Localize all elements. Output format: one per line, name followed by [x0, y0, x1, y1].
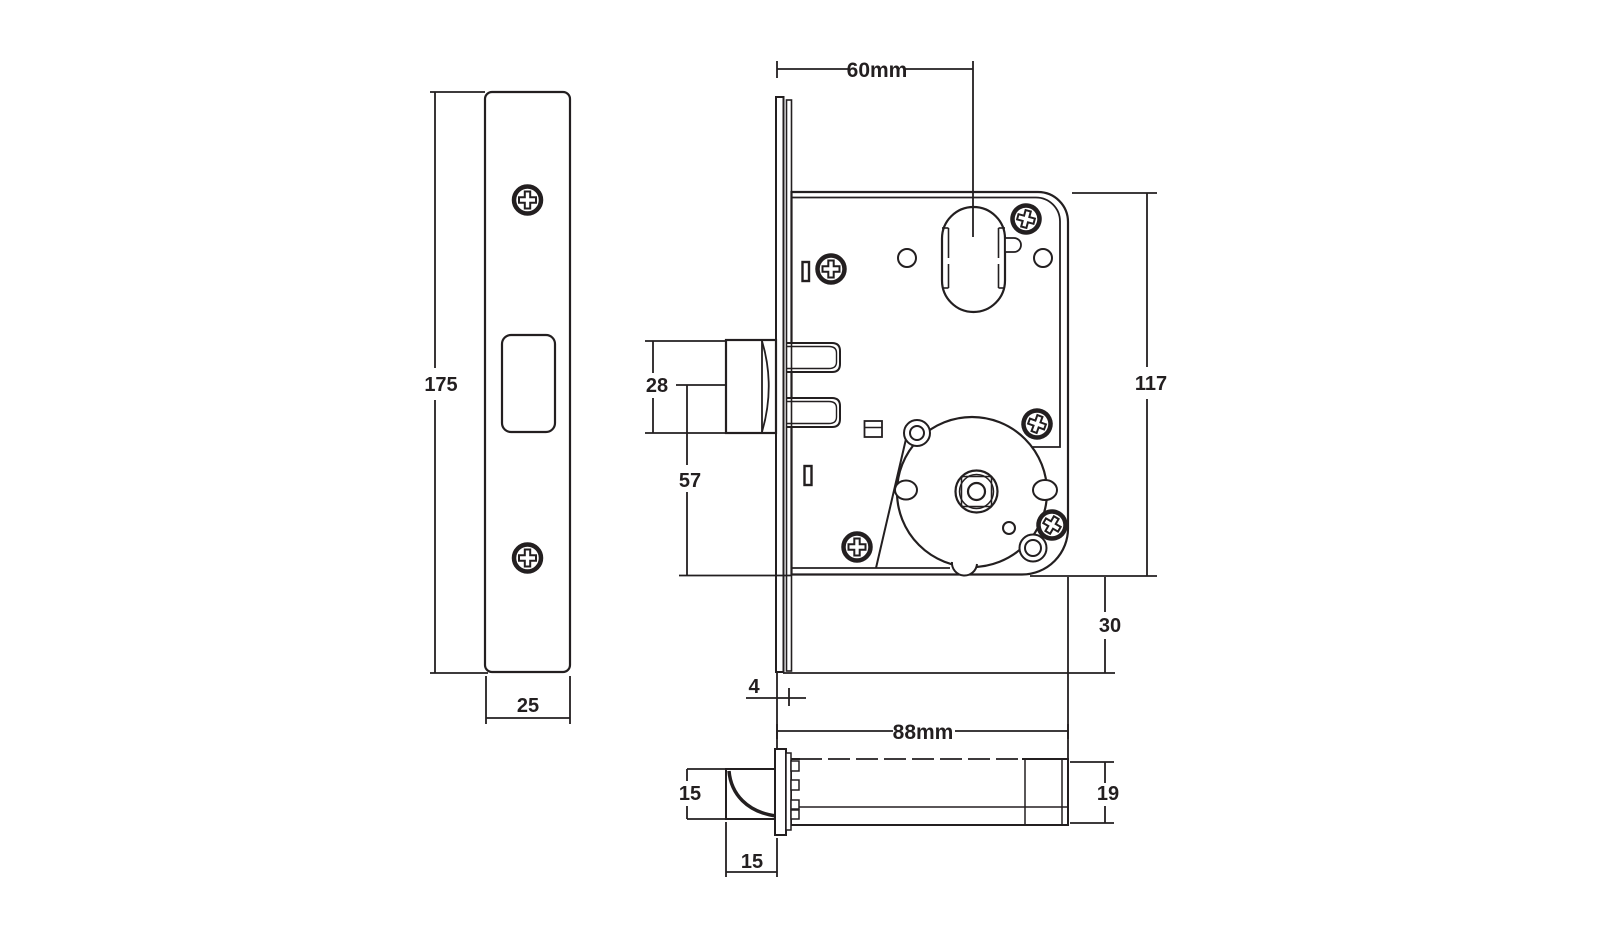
round-hole — [898, 249, 916, 267]
dim-label-backset: 60mm — [847, 59, 908, 82]
dim-label-deadbolt-height: 28 — [646, 375, 668, 397]
faceplate-side-profile — [776, 97, 792, 672]
slot-hole — [803, 262, 810, 281]
latch-bolt-top — [726, 769, 777, 819]
screw-icon — [514, 545, 541, 572]
screw-icon — [818, 256, 845, 283]
screw-icon — [514, 187, 541, 214]
oval-hole — [1033, 480, 1057, 500]
d-shaped-hole — [1005, 238, 1021, 252]
mortise-lock-dimension-drawing: 175 25 — [0, 0, 1599, 933]
dim-label-faceplate-height: 175 — [424, 374, 457, 396]
case-top-outline — [791, 759, 1068, 825]
stop-block — [865, 421, 883, 437]
small-hole — [1003, 522, 1015, 534]
dim-label-case-thickness: 19 — [1097, 783, 1119, 805]
lock-top-view — [726, 749, 1068, 835]
dim-label-latch-height: 15 — [679, 783, 701, 805]
slot-hole — [805, 466, 812, 485]
cam-corner-hole — [1025, 540, 1041, 556]
round-hole — [1034, 249, 1052, 267]
technical-drawing-canvas: 175 25 — [0, 0, 1599, 933]
faceplate-outline — [485, 92, 570, 672]
spindle-hub — [956, 471, 998, 513]
dim-label-faceplate-thickness: 4 — [748, 676, 760, 698]
dim-label-case-height: 117 — [1135, 373, 1167, 395]
dim-label-faceplate-below-case: 30 — [1099, 615, 1121, 637]
dim-label-faceplate-width: 25 — [517, 695, 539, 717]
dim-label-bolt-to-bottom: 57 — [679, 470, 701, 492]
deadbolt — [726, 340, 776, 433]
dim-label-case-depth: 88mm — [893, 721, 954, 744]
faceplate-front-view — [485, 92, 570, 672]
screw-icon — [844, 534, 871, 561]
cam-arm-hole — [910, 426, 924, 440]
oval-hole — [895, 481, 917, 500]
dimension-faceplate-below-case — [783, 577, 1115, 673]
dim-label-latch-depth: 15 — [741, 851, 763, 873]
lock-body-side-view — [726, 97, 1068, 672]
